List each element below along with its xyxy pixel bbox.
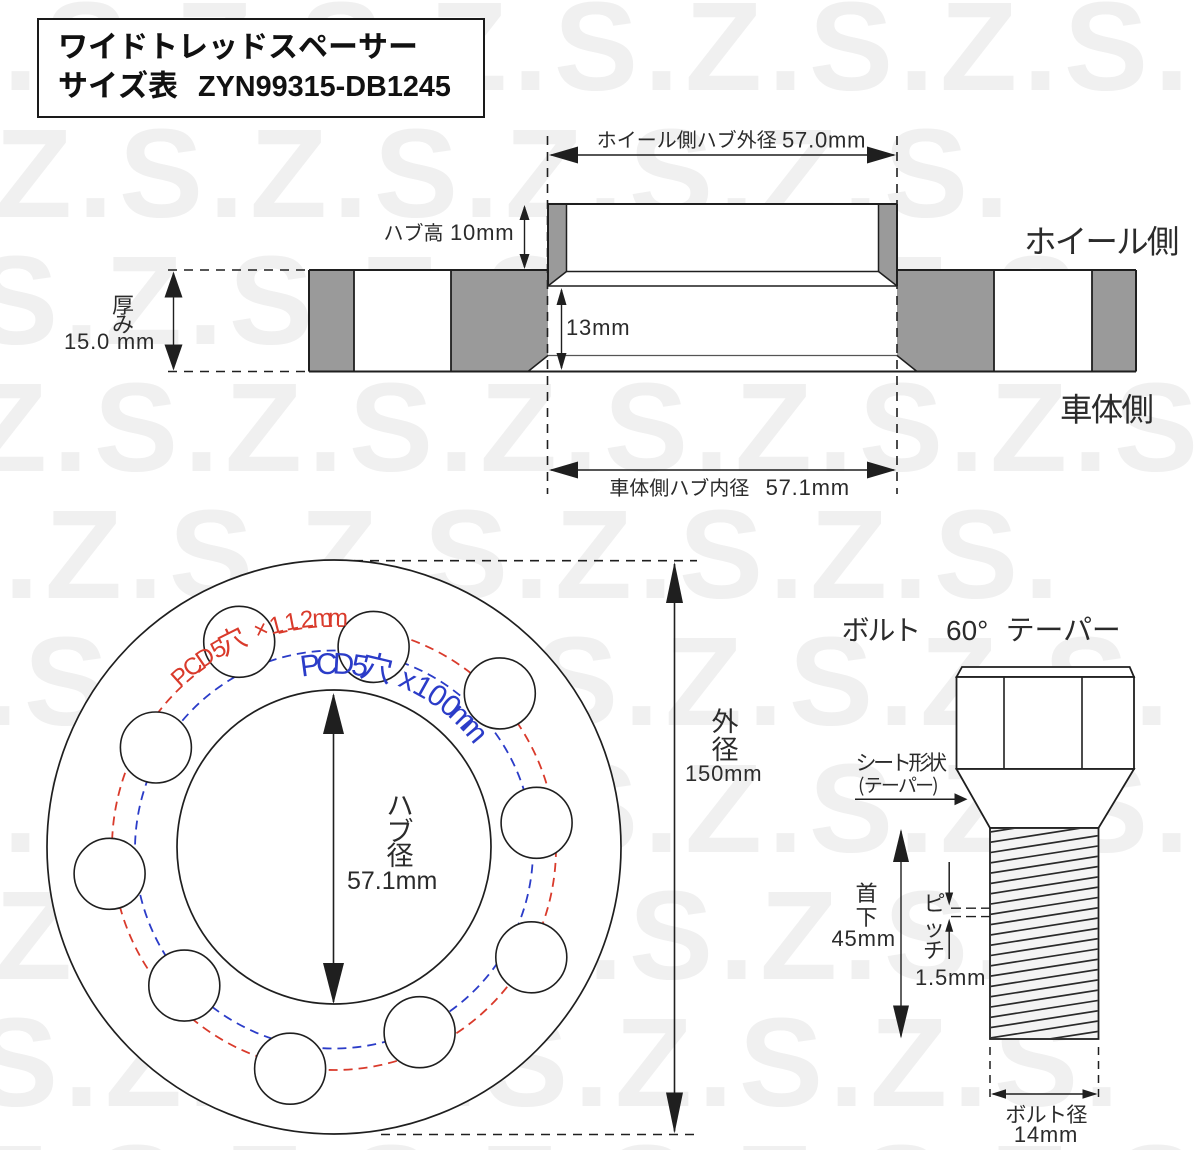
- svg-text:Z.S.Z.S.Z.S.Z.S.Z.S.: Z.S.Z.S.Z.S.Z.S.Z.S.: [0, 484, 1065, 625]
- svg-text:150mm: 150mm: [685, 761, 762, 786]
- svg-text:13mm: 13mm: [566, 315, 630, 340]
- svg-text:45mm: 45mm: [832, 926, 896, 951]
- svg-text:10mm: 10mm: [450, 220, 514, 245]
- svg-text:57.1mm: 57.1mm: [766, 475, 850, 500]
- svg-text:m: m: [328, 604, 348, 631]
- svg-text:15.0 mm: 15.0 mm: [64, 329, 155, 354]
- svg-text:57.1mm: 57.1mm: [347, 867, 437, 895]
- svg-text:1.5mm: 1.5mm: [915, 965, 986, 990]
- svg-text:57.0mm: 57.0mm: [782, 128, 866, 153]
- svg-text:ZYN99315-DB1245: ZYN99315-DB1245: [198, 71, 451, 103]
- svg-text:Z.S.Z.S.Z.S.Z.S.Z.S.: Z.S.Z.S.Z.S.Z.S.Z.S.: [0, 357, 1200, 498]
- svg-text:14mm: 14mm: [1014, 1122, 1078, 1147]
- svg-text:60°: 60°: [946, 615, 988, 646]
